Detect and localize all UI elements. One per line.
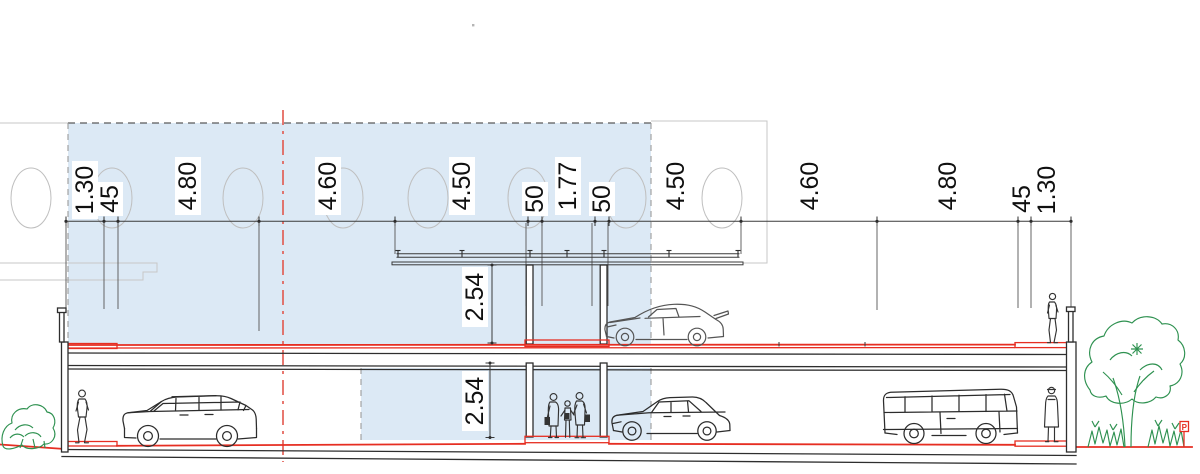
basement-column-left — [526, 363, 533, 437]
parapet-post-left — [60, 312, 65, 342]
pedestrian-left — [76, 390, 89, 443]
wall-right — [1067, 342, 1077, 452]
shrub-left — [2, 405, 55, 449]
architectural-section-drawing: 1.30 45 4.80 4.60 4.50 50 1.77 50 4.50 4… — [0, 0, 1200, 474]
dim-label-12: 45 — [1008, 185, 1036, 213]
clearance-label-lower: 2.54 — [461, 377, 489, 426]
basement-column-right — [600, 363, 607, 437]
minibus-van — [883, 389, 1017, 443]
deck-curb-right — [1015, 343, 1067, 348]
wall-left — [62, 342, 69, 452]
dim-label-3: 4.80 — [174, 162, 202, 211]
shrubs-right — [1088, 420, 1184, 447]
clearance-label-upper: 2.54 — [461, 273, 489, 322]
dim-label-8: 50 — [588, 185, 616, 213]
dim-label-11: 4.80 — [934, 162, 962, 211]
dim-label-7: 1.77 — [554, 162, 582, 211]
station-wagon — [123, 396, 257, 447]
dim-label-4: 4.60 — [314, 162, 342, 211]
dim-label-2: 45 — [96, 185, 124, 213]
pedestrian-upper-deck — [1048, 293, 1059, 342]
dim-label-6: 50 — [521, 185, 549, 213]
parking-sign-letter: P — [1182, 423, 1188, 432]
floor-curb-right — [1015, 441, 1067, 446]
section-canvas: 1.30 45 4.80 4.60 4.50 50 1.77 50 4.50 4… — [0, 0, 1200, 474]
dim-label-1: 1.30 — [71, 166, 99, 215]
canopy-column-left — [526, 265, 533, 344]
pedestrian-right — [1045, 387, 1059, 441]
zone-upper — [68, 123, 651, 345]
stray-mark — [472, 24, 474, 26]
dim-label-13: 1.30 — [1033, 166, 1061, 215]
dim-label-10: 4.60 — [796, 162, 824, 211]
parapet-post-right — [1069, 311, 1074, 342]
dim-label-5: 4.50 — [448, 162, 476, 211]
dim-label-9: 4.50 — [662, 162, 690, 211]
parapet-cap-left — [58, 308, 67, 313]
floor-curb-left — [68, 442, 117, 447]
upper-deck-slab — [68, 353, 1067, 371]
lower-floor-slab — [62, 450, 1076, 465]
parapet-cap-right — [1067, 307, 1076, 312]
